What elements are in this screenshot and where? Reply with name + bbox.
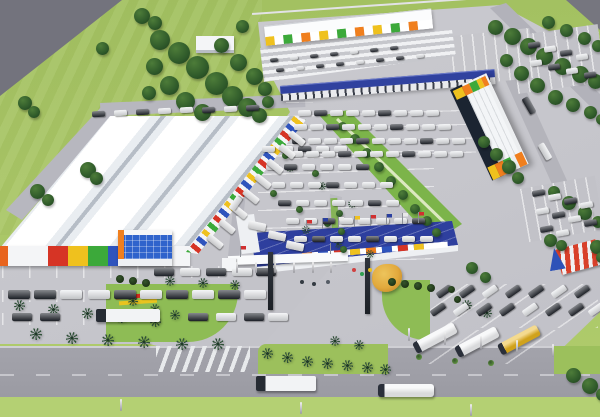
palm-tree — [366, 250, 374, 258]
shrub — [388, 278, 396, 286]
car — [290, 182, 303, 188]
palm-tree — [14, 300, 25, 311]
tree — [542, 16, 555, 29]
car — [256, 268, 276, 276]
car — [268, 313, 288, 321]
palm-tree — [230, 280, 240, 290]
sprite-layer — [0, 0, 600, 417]
light-pole — [293, 262, 295, 273]
totem-pole — [268, 252, 273, 310]
car — [216, 313, 236, 321]
flag — [354, 216, 360, 227]
tree — [466, 262, 478, 274]
car — [266, 158, 284, 175]
car — [296, 200, 309, 206]
car — [452, 138, 465, 144]
tree — [236, 20, 249, 33]
car — [180, 107, 193, 114]
car — [192, 290, 214, 299]
tree — [160, 76, 179, 95]
shrub — [401, 280, 409, 288]
shrub — [488, 360, 494, 366]
car — [288, 130, 306, 147]
tree — [566, 98, 580, 112]
car — [136, 109, 149, 116]
car — [272, 182, 285, 188]
light-pole — [408, 328, 410, 341]
car — [336, 62, 344, 67]
car — [346, 110, 359, 116]
tree — [296, 206, 303, 213]
car — [426, 110, 439, 116]
car — [438, 124, 451, 130]
palm-tree — [82, 308, 93, 319]
car — [420, 138, 433, 144]
tree — [312, 170, 319, 177]
car — [202, 107, 215, 114]
tree — [42, 194, 54, 206]
marker-dot — [312, 282, 316, 286]
tree — [490, 148, 503, 161]
car — [232, 268, 252, 276]
bus — [497, 324, 541, 355]
shrub — [142, 279, 150, 287]
car — [330, 236, 343, 242]
car — [416, 54, 424, 59]
truck — [96, 309, 160, 322]
car — [308, 138, 321, 144]
car — [560, 49, 573, 57]
car — [458, 284, 475, 299]
car — [298, 110, 311, 116]
tree — [90, 172, 103, 185]
tree — [560, 24, 573, 37]
car — [320, 164, 333, 170]
car — [284, 164, 297, 170]
light-pole — [470, 404, 472, 416]
car — [332, 200, 345, 206]
car — [498, 302, 515, 317]
tree — [270, 190, 277, 197]
car — [386, 200, 399, 206]
car — [180, 268, 200, 276]
car — [537, 142, 552, 161]
car — [362, 110, 375, 116]
car — [338, 164, 351, 170]
car — [378, 110, 391, 116]
car — [521, 96, 536, 115]
flag — [322, 218, 328, 229]
car — [544, 45, 557, 53]
car — [218, 290, 240, 299]
palm-tree — [30, 328, 42, 340]
car — [420, 236, 433, 242]
car — [394, 110, 407, 116]
palm-tree — [322, 358, 333, 369]
totem-pole — [365, 258, 370, 314]
car — [528, 41, 541, 49]
car — [40, 313, 60, 321]
tree — [566, 368, 581, 383]
tree — [504, 28, 521, 45]
flag — [240, 246, 246, 257]
tree — [488, 20, 503, 35]
car — [530, 59, 543, 67]
car — [224, 106, 237, 113]
car — [244, 290, 266, 299]
car — [290, 56, 298, 61]
palm-tree — [138, 336, 150, 348]
tree — [584, 106, 597, 119]
car — [8, 290, 30, 299]
flag — [386, 214, 392, 225]
car — [429, 302, 446, 317]
shrub — [454, 296, 461, 303]
car — [504, 284, 521, 299]
palm-tree — [262, 348, 273, 359]
tree — [556, 240, 567, 251]
light-pole — [444, 332, 446, 345]
truck — [256, 376, 316, 391]
car — [330, 52, 338, 57]
tree — [214, 38, 229, 53]
car — [278, 200, 291, 206]
car — [88, 290, 110, 299]
light-pole — [300, 402, 302, 414]
bus — [454, 326, 500, 358]
car — [324, 138, 337, 144]
tree — [336, 210, 343, 217]
car — [342, 124, 355, 130]
palm-tree — [176, 338, 188, 350]
car — [206, 233, 224, 250]
tree — [596, 388, 600, 401]
car — [550, 284, 567, 299]
car — [567, 302, 584, 317]
car — [370, 48, 378, 53]
car — [114, 290, 136, 299]
car — [262, 146, 275, 152]
car — [568, 215, 582, 223]
car — [350, 50, 358, 55]
car — [314, 200, 327, 206]
palm-tree — [198, 278, 208, 288]
marker-dot — [360, 272, 364, 276]
car — [12, 313, 32, 321]
light-pole — [120, 399, 122, 411]
tree — [596, 252, 600, 263]
car — [370, 151, 383, 157]
palm-tree — [302, 356, 313, 367]
car — [306, 151, 319, 157]
tree — [480, 272, 491, 283]
car — [540, 225, 554, 233]
car — [481, 284, 498, 299]
palm-tree — [342, 360, 353, 371]
car — [338, 151, 351, 157]
bus — [378, 384, 434, 397]
car — [314, 110, 327, 116]
shrub — [452, 358, 458, 364]
car — [406, 124, 419, 130]
bus — [412, 322, 458, 354]
car — [140, 290, 162, 299]
car — [254, 173, 272, 190]
car — [587, 302, 600, 317]
palm-tree — [330, 336, 340, 346]
car — [60, 290, 82, 299]
car — [218, 218, 236, 235]
car — [380, 182, 393, 188]
car — [388, 138, 401, 144]
car — [390, 46, 398, 51]
car — [206, 268, 226, 276]
tree — [478, 136, 490, 148]
car — [310, 54, 318, 59]
tree — [340, 246, 347, 253]
tree — [592, 40, 600, 52]
car — [390, 124, 403, 130]
car — [348, 236, 361, 242]
car — [368, 200, 381, 206]
car — [356, 164, 369, 170]
tree — [578, 32, 591, 45]
car — [356, 60, 364, 65]
car — [418, 151, 431, 157]
car — [296, 66, 304, 71]
palm-tree — [212, 338, 224, 350]
marker-dot — [326, 280, 330, 284]
car — [386, 151, 399, 157]
tree — [148, 16, 162, 30]
car — [402, 151, 415, 157]
marker-dot — [352, 268, 356, 272]
car — [302, 164, 315, 170]
marker-dot — [368, 268, 372, 272]
tree — [548, 90, 563, 105]
car — [154, 268, 174, 276]
light-pole — [274, 262, 276, 273]
car — [158, 108, 171, 115]
tree — [230, 54, 247, 71]
car — [326, 124, 339, 130]
tree — [258, 82, 272, 96]
palm-tree — [102, 334, 114, 346]
flag — [370, 215, 376, 226]
palm-tree — [380, 364, 391, 375]
car — [270, 58, 278, 63]
car — [450, 151, 463, 157]
car — [310, 124, 323, 130]
car — [527, 284, 544, 299]
car — [188, 313, 208, 321]
car — [344, 182, 357, 188]
car — [246, 105, 259, 112]
car — [322, 151, 335, 157]
light-pole — [480, 336, 482, 349]
shrub — [416, 354, 422, 360]
tree — [262, 96, 274, 108]
car — [434, 151, 447, 157]
car — [242, 188, 260, 205]
tree — [338, 228, 345, 235]
palm-tree — [66, 332, 78, 344]
car — [580, 201, 594, 209]
light-pole — [516, 340, 518, 353]
car — [436, 138, 449, 144]
light-pole — [312, 262, 314, 273]
shrub — [427, 284, 435, 292]
light-pole — [330, 262, 332, 273]
car — [384, 236, 397, 242]
car — [286, 218, 299, 224]
car — [247, 220, 266, 232]
car — [356, 138, 369, 144]
tree — [398, 190, 408, 200]
car — [521, 302, 538, 317]
tree — [96, 42, 109, 55]
aerial-rendering-market-complex: Aerial 3D architectural rendering of a w… — [0, 0, 600, 417]
car — [244, 313, 264, 321]
car — [92, 111, 105, 118]
car — [410, 110, 423, 116]
light-pole — [236, 262, 238, 273]
palm-tree — [165, 276, 175, 286]
flag — [402, 213, 408, 224]
car — [374, 124, 387, 130]
car — [556, 229, 570, 237]
tree — [374, 162, 384, 172]
car — [362, 182, 375, 188]
shrub — [116, 275, 124, 283]
car — [354, 151, 367, 157]
tree — [530, 78, 545, 93]
car — [366, 236, 379, 242]
car — [166, 290, 188, 299]
palm-tree — [170, 310, 180, 320]
light-pole — [255, 262, 257, 273]
car — [330, 110, 343, 116]
car — [312, 236, 325, 242]
car — [276, 68, 284, 73]
flag — [418, 212, 424, 223]
tree — [514, 66, 529, 81]
car — [548, 193, 562, 201]
tree — [150, 30, 170, 50]
car — [552, 211, 566, 219]
car — [294, 124, 307, 130]
car — [34, 290, 56, 299]
palm-tree — [362, 362, 373, 373]
shrub — [448, 286, 455, 293]
car — [358, 124, 371, 130]
car — [114, 110, 127, 117]
tree — [142, 86, 156, 100]
car — [267, 230, 286, 242]
light-pole — [552, 344, 554, 357]
car — [404, 138, 417, 144]
car — [532, 189, 546, 197]
tree — [512, 172, 524, 184]
flag — [338, 217, 344, 228]
flag — [330, 243, 336, 254]
tree — [500, 54, 513, 67]
flag — [306, 220, 312, 231]
car — [422, 124, 435, 130]
tree — [596, 114, 600, 125]
shrub — [414, 282, 422, 290]
tree — [146, 58, 163, 75]
car — [294, 236, 307, 242]
palm-tree — [354, 340, 364, 350]
tree — [28, 106, 40, 118]
tree — [186, 56, 209, 79]
car — [340, 138, 353, 144]
car — [576, 53, 589, 61]
shrub — [129, 277, 137, 285]
car — [376, 58, 384, 63]
car — [350, 200, 363, 206]
car — [316, 64, 324, 69]
marker-dot — [300, 280, 304, 284]
palm-tree — [282, 352, 293, 363]
tree — [432, 228, 441, 237]
car — [402, 236, 415, 242]
car — [396, 56, 404, 61]
car — [372, 138, 385, 144]
car — [544, 302, 561, 317]
car — [308, 182, 321, 188]
car — [326, 182, 339, 188]
car — [536, 207, 550, 215]
car — [452, 302, 469, 317]
car — [573, 284, 590, 299]
